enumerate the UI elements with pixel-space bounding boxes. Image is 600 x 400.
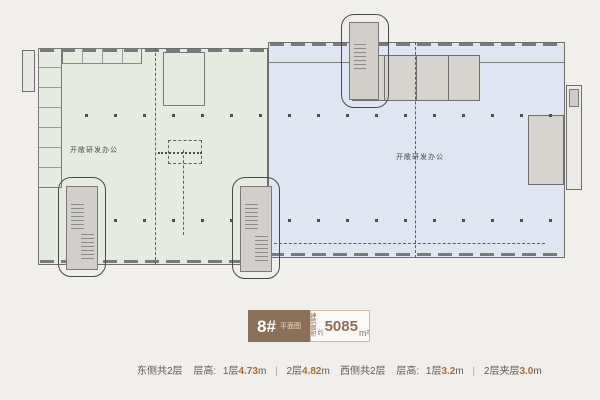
east-height-label: 层高:: [193, 366, 216, 377]
east-perimeter-rooms: [38, 48, 62, 188]
area-prefix-top: 建筑: [311, 314, 317, 326]
plan-badge: 8# 平面图: [248, 310, 310, 342]
east-floor1-value: 4.73: [238, 366, 257, 377]
building-number: 8#: [257, 318, 276, 335]
east-top-rooms: [62, 48, 142, 64]
floor-plan-page: 开敞研发办公 开敞研发办公 8# 平面图 建筑 面积 约 5085 m² 东侧共…: [0, 0, 600, 400]
east-floor2-unit: m: [321, 366, 329, 377]
west-spec-line: 西侧共2层 层高: 1层3.2m | 2层夹层3.0m: [340, 362, 542, 377]
east-floor2-label: 2层: [286, 366, 302, 377]
spec-separator: |: [473, 366, 476, 377]
dotted-partition-line: [158, 152, 202, 154]
area-approx-label: 约: [318, 328, 324, 337]
east-spec-line: 东侧共2层 层高: 1层4.73m | 2层4.82m: [137, 362, 330, 377]
east-floor2-value: 4.82: [302, 366, 321, 377]
area-badge: 建筑 面积 约 5085 m²: [310, 310, 370, 342]
column-grid-row: [85, 219, 555, 222]
area-unit: m²: [359, 328, 370, 338]
spec-separator: |: [275, 366, 278, 377]
east-mid-room: [163, 52, 205, 106]
east-zone-label: 开敞研发办公: [70, 145, 118, 155]
west-floor2-unit: m: [533, 366, 541, 377]
area-prefix-label: 建筑 面积: [311, 314, 317, 338]
west-floor2-label: 2层夹层: [484, 366, 520, 377]
west-floor1-value: 3.2: [441, 366, 455, 377]
west-zone-label: 开敞研发办公: [396, 152, 444, 162]
west-exterior-stair: [22, 50, 35, 92]
grid-dashed-line: [415, 42, 416, 258]
west-side-label: 西侧共2层: [340, 366, 386, 377]
grid-dashed-line: [183, 150, 184, 235]
stair-core-callout: [341, 14, 389, 108]
window-wall-hatch: [270, 253, 563, 256]
grid-dashed-line: [269, 243, 545, 244]
area-prefix-bottom: 面积: [311, 326, 317, 338]
west-height-label: 层高:: [396, 366, 419, 377]
plan-type-label: 平面图: [280, 321, 301, 331]
east-side-label: 东侧共2层: [137, 366, 183, 377]
west-dock-room: [528, 115, 564, 185]
grid-dashed-line: [155, 48, 156, 265]
exterior-stair-core: [569, 89, 579, 107]
east-floor1-label: 1层: [223, 366, 239, 377]
area-value: 5085: [325, 319, 358, 334]
west-floor1-unit: m: [455, 366, 463, 377]
stair-core-callout: [58, 177, 106, 277]
window-wall-hatch: [270, 43, 563, 46]
west-floor2-value: 3.0: [519, 366, 533, 377]
stair-core-callout: [232, 177, 280, 279]
west-floor1-label: 1层: [426, 366, 442, 377]
column-grid-row: [85, 114, 555, 117]
east-floor1-unit: m: [258, 366, 266, 377]
